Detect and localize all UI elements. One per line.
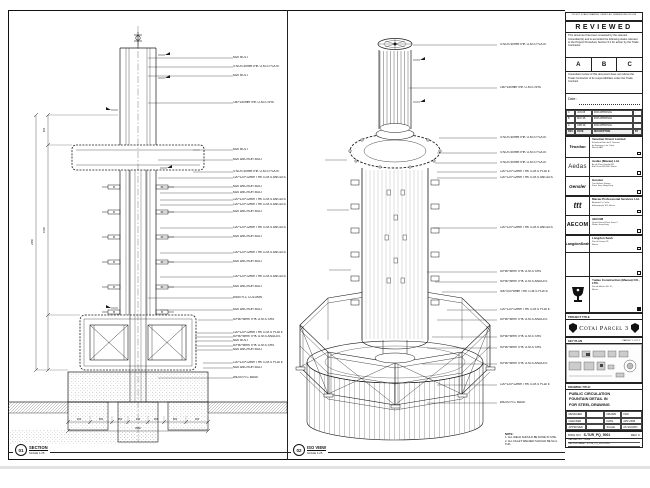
checkbox	[637, 171, 641, 175]
callout-label: 50*50*5mm THK G.M.S ANGLES	[500, 362, 560, 365]
checkbox	[637, 210, 641, 214]
drawing-title: PUBLIC CIRCULATION FOUNTAIN DETAIL IN FO…	[565, 389, 643, 411]
project-name-row: Cotai Parcel 3	[565, 319, 643, 337]
contractor-logo-icon	[566, 277, 590, 312]
callout-label: Ø4200 R.C BASE	[500, 401, 560, 404]
company-address: Rua do Campo 78, Macau	[592, 241, 640, 246]
info-cell: -	[586, 424, 604, 430]
callout-label: M20 ANCHOR BOLT	[233, 348, 287, 351]
callout-label: M20 ANCHOR BOLT	[233, 185, 287, 188]
dim-value: 350	[118, 417, 123, 421]
company-address: Two Harbour Square, Kwun Tong, Hong Kong	[592, 183, 640, 188]
callout-label: M20 ANCHOR BOLT	[233, 260, 287, 263]
dim-value: 350	[154, 417, 159, 421]
contractor-box: Yudao Construction (Macau) CO., LTD. Rua…	[565, 276, 643, 313]
info-table: DESIGNED DRAWN LWO CHECKED - DATE APR 20…	[565, 410, 643, 431]
callout-label: 120*120*12mm THK G.M.S PLATE	[500, 308, 560, 311]
callout-label: M20 BOLT	[233, 148, 287, 151]
callout-label: 50*50*5mm THK G.M.S SHS	[500, 270, 560, 273]
page-edge-shadow	[0, 466, 650, 469]
callout-label: M20 BOLT	[233, 74, 287, 77]
iso-view-tag: 02 ISO VIEW SCALE 1:25	[291, 444, 328, 456]
callout-label: 4 NOS 50mmTHK G.M.S PLATE	[500, 136, 560, 139]
callout-label: M20 BOLT	[233, 339, 287, 342]
view-scale: SCALE 1:25	[29, 451, 48, 455]
gensler-logo: Gensler	[566, 177, 590, 195]
callout-label: 4 NOS 50mmTHK G.M.S PLATE	[233, 65, 287, 68]
contractor-name: Yudao Construction (Macau) CO., LTD.	[592, 279, 640, 286]
company-name: Aedas (Macau) Ltd.	[592, 160, 640, 163]
weld-symbol	[158, 75, 170, 78]
callout-label: Ø350 R.C COLUMN	[233, 296, 287, 299]
checkbox	[637, 247, 641, 251]
dim-value: 1500	[42, 227, 46, 233]
reviewed-stamp: REVIEWED This document has been reviewed…	[565, 21, 643, 110]
top-cap	[378, 39, 412, 50]
callout-label: M20 ANCHOR BOLT	[233, 308, 287, 311]
status-option-a: A	[566, 58, 592, 71]
mps-logo: ttt	[566, 197, 590, 215]
company-name: AECOM	[592, 218, 640, 221]
company-address: Estrada da Baía de N. Senhora da Esperan…	[592, 142, 640, 149]
weld-symbol	[160, 165, 172, 168]
callout-label: M20 ANCHOR BOLT	[233, 191, 287, 194]
review-status-options: A B C	[566, 57, 642, 71]
dwg-rev: REV C	[631, 433, 640, 437]
drawing-sheet: 450 1500 2450 200 660 350 140 350 660 20…	[0, 0, 650, 488]
callout-label: 4 NOS 50mmTHK G.M.S PLATE	[500, 43, 560, 46]
view-number-bubble: 02	[293, 444, 305, 456]
company-box-empty	[565, 252, 643, 277]
reviewed-title: REVIEWED	[566, 22, 642, 33]
company-address: Av. da Praia Grande 665, Edif. Great Wil…	[592, 164, 640, 169]
callout-label: M20 BOLT	[233, 56, 287, 59]
project-name: Cotai Parcel 3	[579, 325, 628, 332]
callout-label: M20 ANCHOR BOLT	[233, 235, 287, 238]
callout-label: 50*50*5mm THK G.M.S ANGLES	[500, 318, 560, 321]
foundation	[8, 372, 287, 444]
langdonseah-logo: LangdonSeah	[566, 236, 590, 252]
aedas-logo: Aedas	[566, 158, 590, 176]
callout-label: 120*120*12mm THK G.M.S ANGLES	[500, 176, 560, 179]
callout-label: 120*120*12mm THK G.M.S ANGLES	[233, 176, 287, 179]
checkbox	[637, 271, 641, 275]
callout-label: 400*200*8mm THK G.M.S PLATE	[500, 290, 560, 293]
cad-row: REFERENCE CAD FILE NAME :	[568, 446, 640, 448]
section-view-tag: 01 SECTION SCALE 1:25	[13, 444, 50, 456]
company-address: Alameda Dr. Carlos d'Assumpção 181, Maca…	[592, 202, 640, 207]
leader-lines	[148, 58, 233, 378]
dim-value: 200	[195, 417, 200, 421]
callout-label: 4 NOS 50mmTHK G.M.S PLATE	[500, 161, 560, 164]
dim-value: 140	[136, 417, 141, 421]
note-line: 2. ALL FILLET WELDED SHOULD BE 6mm THK.	[505, 440, 561, 447]
rev-header-cell: DESCRIPTION	[592, 129, 633, 135]
rod-bundle	[376, 50, 414, 140]
dim-value: 450	[42, 127, 46, 132]
callout-label: 50*50*5mm THK G.M.S SHS	[500, 346, 560, 349]
callout-label: 120*120*12mm THK G.M.S PLATE	[233, 331, 287, 334]
reviewed-paragraph: Consultant review of this document does …	[566, 71, 642, 93]
callout-label: M20 ANCHOR BOLT	[233, 285, 287, 288]
company-box-mps: ttt Macau Professional Services Ltd. Ala…	[565, 196, 643, 216]
callout-label: 120*120*12mm THK G.M.S ANGLES	[233, 226, 287, 229]
callout-label: M20 ANCHOR BOLT	[233, 158, 287, 161]
callout-label: 120*120*12mm THK G.M.S PLATE	[500, 383, 560, 386]
info-cell: APPROVED	[566, 424, 586, 430]
key-plan-thumbnail	[565, 343, 643, 383]
fluted-column	[351, 168, 439, 363]
callout-label: 50*50*5mm THK G.M.S SHS	[500, 335, 560, 338]
callout-label: 50*50*5mm THK G.M.S SHS	[233, 344, 287, 347]
dim-value: 200	[77, 417, 82, 421]
company-box-aecom: AECOM AECOM Grand Central Plaza Tower 2,…	[565, 215, 643, 235]
callout-label: 50*50*5mm THK G.M.S SHS	[233, 318, 287, 321]
rev-header-cell: BY	[633, 129, 642, 135]
parcel-label: PARCEL 1, LOT 2	[622, 338, 640, 343]
company-name: Gensler	[592, 179, 640, 182]
company-box-venetian: Venetian Venetian Orient Limited Estrada…	[565, 136, 643, 158]
reviewed-paragraph: This document has been reviewed by the r…	[566, 33, 642, 57]
drawing-title-line: FOR STEEL DRAWING	[569, 403, 639, 409]
checkbox	[637, 190, 641, 194]
emblem-icon	[569, 323, 577, 333]
dim-value: 660	[173, 417, 178, 421]
cad-info-rows: CAD REF. NO. : S-608 CAD FILE NAME : S-T…	[565, 438, 643, 448]
company-address: Grand Central Plaza Tower 2, Shatin, Hon…	[592, 222, 640, 227]
weld-symbol	[158, 52, 170, 55]
dwg-label: DWG NO	[568, 433, 581, 437]
status-option-b: B	[592, 58, 618, 71]
contractor-address: Rua de Malaca No. 35, Macau	[592, 286, 640, 291]
review-date-row: Date :	[566, 93, 642, 105]
callout-label: 120*120*12mm THK G.M.S ANGLES	[500, 226, 560, 229]
rev-header-cell: REV.	[566, 129, 575, 135]
company-name: Langdon Seah	[592, 237, 640, 240]
status-option-c: C	[617, 58, 642, 71]
emblem-icon	[631, 323, 639, 333]
general-notes: NOTE: 1. ALL WELD SHOULD BE DONE IN SITE…	[505, 433, 561, 447]
weld-symbol	[106, 305, 118, 308]
top-bolt-symbol	[134, 32, 142, 48]
callout-label: 120*120*12mm THK G.M.S PLATE	[500, 170, 560, 173]
checkbox	[637, 152, 641, 156]
callout-label: 50*50*5mm THK G.M.S ANGLES	[233, 335, 287, 338]
callout-label: Ø4200 R.C BASE	[233, 376, 287, 379]
revision-table: C JUN 08 FOR APPROVAL - B MAY 08 FOR APP…	[565, 109, 643, 136]
view-scale: SCALE 1:25	[307, 451, 326, 455]
weld-symbol	[106, 107, 118, 110]
rev-header-cell: DATE	[575, 129, 592, 135]
dim-total: 2560	[135, 426, 141, 430]
callout-label: 150*150mmTHK G.M.S SHS	[500, 86, 560, 89]
weld-symbol	[413, 99, 425, 102]
weld-symbol	[413, 57, 425, 60]
date-label: Date :	[568, 97, 577, 105]
callout-label: 4 NOS 50mmTHK G.M.S PLATE	[233, 170, 287, 173]
info-cell: SCALE	[604, 424, 621, 430]
venetian-logo: Venetian	[566, 137, 590, 157]
dwg-number: S-TUR_PQ_5001	[584, 433, 628, 437]
company-box-langdonseah: LangdonSeah Langdon Seah Rua do Campo 78…	[565, 235, 643, 253]
company-box-gensler: Gensler Gensler Two Harbour Square, Kwun…	[565, 176, 643, 196]
info-cell: AS SHOWN	[621, 424, 642, 430]
date-fill-line	[579, 97, 640, 105]
callout-label: 150*150mmTHK G.M.S SHS	[233, 101, 287, 104]
empty-logo-cell	[566, 253, 590, 276]
aecom-logo: AECOM	[566, 216, 590, 234]
callout-label: 120*120*12mm THK G.M.S PLATE	[233, 361, 287, 364]
callout-label: 120*120*12mm THK G.M.S ANGLES	[233, 251, 287, 254]
callout-label: M20 ANCHOR BOLT	[233, 366, 287, 369]
callout-label: 120*120*12mm THK G.M.S ANGLES	[233, 203, 287, 206]
title-block: DO NOT SCALE DRAWING. VERIFY ALL DIMENSI…	[565, 10, 643, 460]
company-box-aedas: Aedas Aedas (Macau) Ltd. Av. da Praia Gr…	[565, 157, 643, 177]
dim-value: 2450	[30, 239, 34, 245]
callout-label: 50*50*5mm THK G.M.S ANGLES	[500, 280, 560, 283]
callout-label: 120*120*12mm THK G.M.S ANGLES	[233, 275, 287, 278]
filled-square	[637, 307, 641, 311]
company-name: Venetian Orient Limited	[592, 138, 640, 141]
callout-label: 4 NOS 50mmTHK G.M.S PLATE	[500, 151, 560, 154]
checkbox	[637, 229, 641, 233]
dim-value: 660	[99, 417, 104, 421]
view-number-bubble: 01	[15, 444, 27, 456]
callout-label: 120*120*12mm THK G.M.S ANGLES	[233, 198, 287, 201]
callout-label: M20 ANCHOR BOLT	[233, 210, 287, 213]
